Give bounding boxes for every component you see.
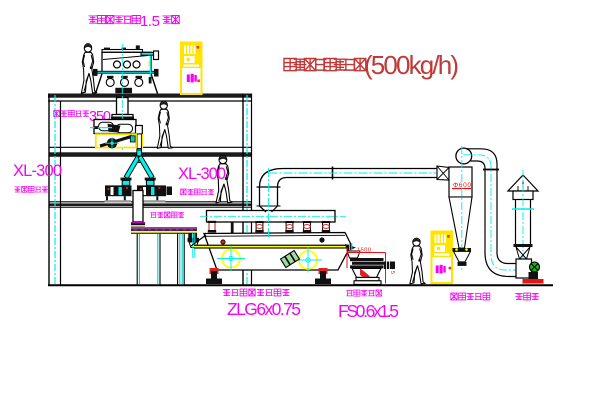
svg-text:1.5: 1.5: [140, 13, 160, 30]
svg-text:(500kg/h): (500kg/h): [364, 50, 459, 80]
svg-text:ZLG6x0.75: ZLG6x0.75: [227, 299, 301, 319]
svg-text:XL-300: XL-300: [178, 165, 226, 183]
svg-text:XL-300: XL-300: [13, 162, 62, 180]
svg-text:FS0.6x1.5: FS0.6x1.5: [338, 301, 399, 321]
svg-text:1500: 1500: [357, 248, 371, 254]
